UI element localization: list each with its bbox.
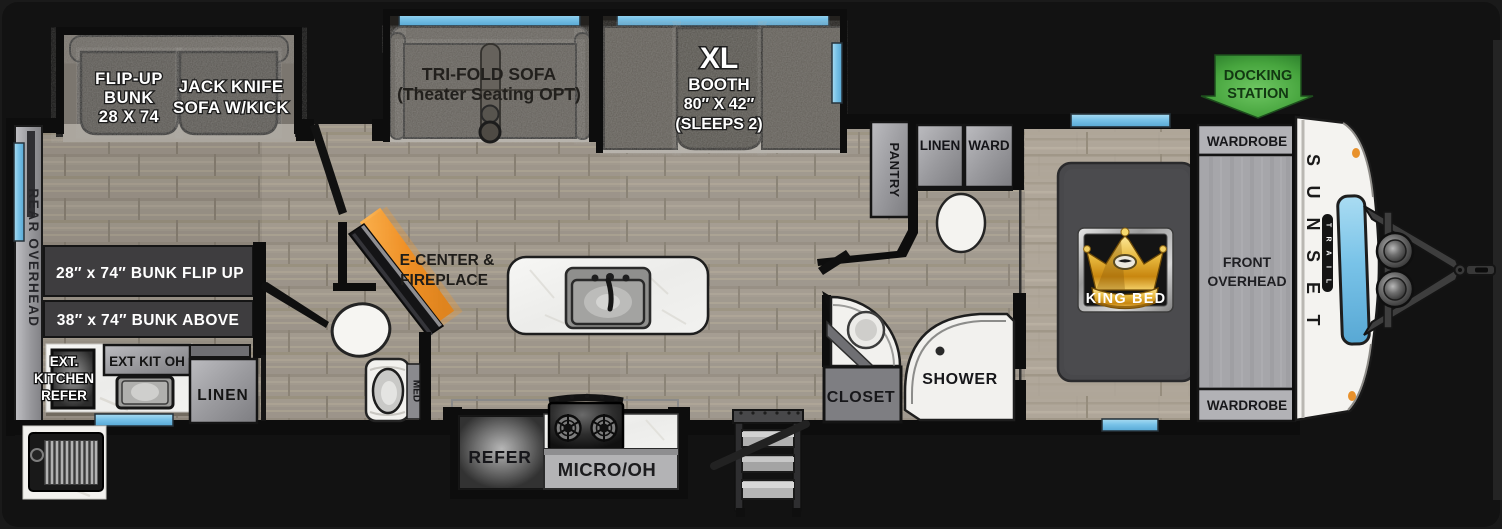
- svg-text:WARDROBE: WARDROBE: [1207, 398, 1287, 413]
- svg-text:JACK KNIFE: JACK KNIFE: [178, 77, 283, 96]
- svg-text:LINEN: LINEN: [197, 387, 249, 404]
- svg-text:28 X 74: 28 X 74: [99, 108, 160, 126]
- svg-text:80″ X 42″: 80″ X 42″: [684, 96, 755, 113]
- svg-text:T: T: [1325, 223, 1332, 228]
- svg-text:I: I: [1325, 266, 1332, 268]
- svg-text:U: U: [1303, 186, 1323, 199]
- svg-text:KITCHEN: KITCHEN: [34, 371, 94, 386]
- svg-text:MICRO/OH: MICRO/OH: [558, 459, 657, 480]
- svg-text:28″ x 74″ BUNK FLIP UP: 28″ x 74″ BUNK FLIP UP: [56, 265, 244, 282]
- svg-text:SOFA W/KICK: SOFA W/KICK: [173, 98, 289, 117]
- svg-text:(Theater Seating OPT): (Theater Seating OPT): [397, 84, 581, 104]
- svg-text:S: S: [1303, 250, 1323, 262]
- svg-text:SHOWER: SHOWER: [922, 371, 998, 388]
- svg-text:FIREPLACE: FIREPLACE: [400, 272, 488, 289]
- svg-text:38″ x 74″ BUNK ABOVE: 38″ x 74″ BUNK ABOVE: [57, 312, 240, 329]
- svg-text:REFER: REFER: [468, 447, 531, 467]
- svg-text:WARDROBE: WARDROBE: [1207, 134, 1287, 149]
- svg-text:EXT.: EXT.: [50, 354, 79, 369]
- svg-text:MED: MED: [411, 380, 422, 402]
- svg-text:LINEN: LINEN: [920, 138, 961, 153]
- svg-text:BOOTH: BOOTH: [688, 75, 749, 94]
- svg-text:CLOSET: CLOSET: [827, 389, 896, 406]
- svg-text:TRI-FOLD SOFA: TRI-FOLD SOFA: [422, 64, 557, 84]
- svg-text:BUNK: BUNK: [104, 89, 154, 107]
- svg-text:FRONT: FRONT: [1223, 254, 1272, 270]
- svg-text:WARD: WARD: [968, 138, 1009, 153]
- svg-text:E: E: [1303, 282, 1323, 294]
- svg-text:EXT KIT OH: EXT KIT OH: [109, 354, 185, 369]
- svg-text:R: R: [1325, 236, 1332, 241]
- svg-text:FLIP-UP: FLIP-UP: [95, 70, 163, 88]
- svg-text:N: N: [1303, 218, 1323, 231]
- svg-text:S: S: [1303, 154, 1323, 166]
- svg-text:PANTRY: PANTRY: [887, 143, 902, 198]
- svg-text:A: A: [1325, 250, 1332, 255]
- svg-text:T: T: [1303, 315, 1323, 326]
- svg-text:DOCKING: DOCKING: [1224, 68, 1292, 84]
- svg-text:E-CENTER &: E-CENTER &: [400, 252, 495, 269]
- svg-text:STATION: STATION: [1227, 86, 1288, 102]
- svg-text:OVERHEAD: OVERHEAD: [1207, 273, 1286, 289]
- svg-text:KING BED: KING BED: [1086, 291, 1167, 307]
- svg-text:XL: XL: [700, 42, 738, 75]
- svg-text:REAR OVERHEAD: REAR OVERHEAD: [26, 188, 41, 327]
- svg-text:REFER: REFER: [41, 388, 87, 403]
- svg-text:L: L: [1325, 279, 1332, 284]
- svg-text:(SLEEPS 2): (SLEEPS 2): [675, 116, 762, 133]
